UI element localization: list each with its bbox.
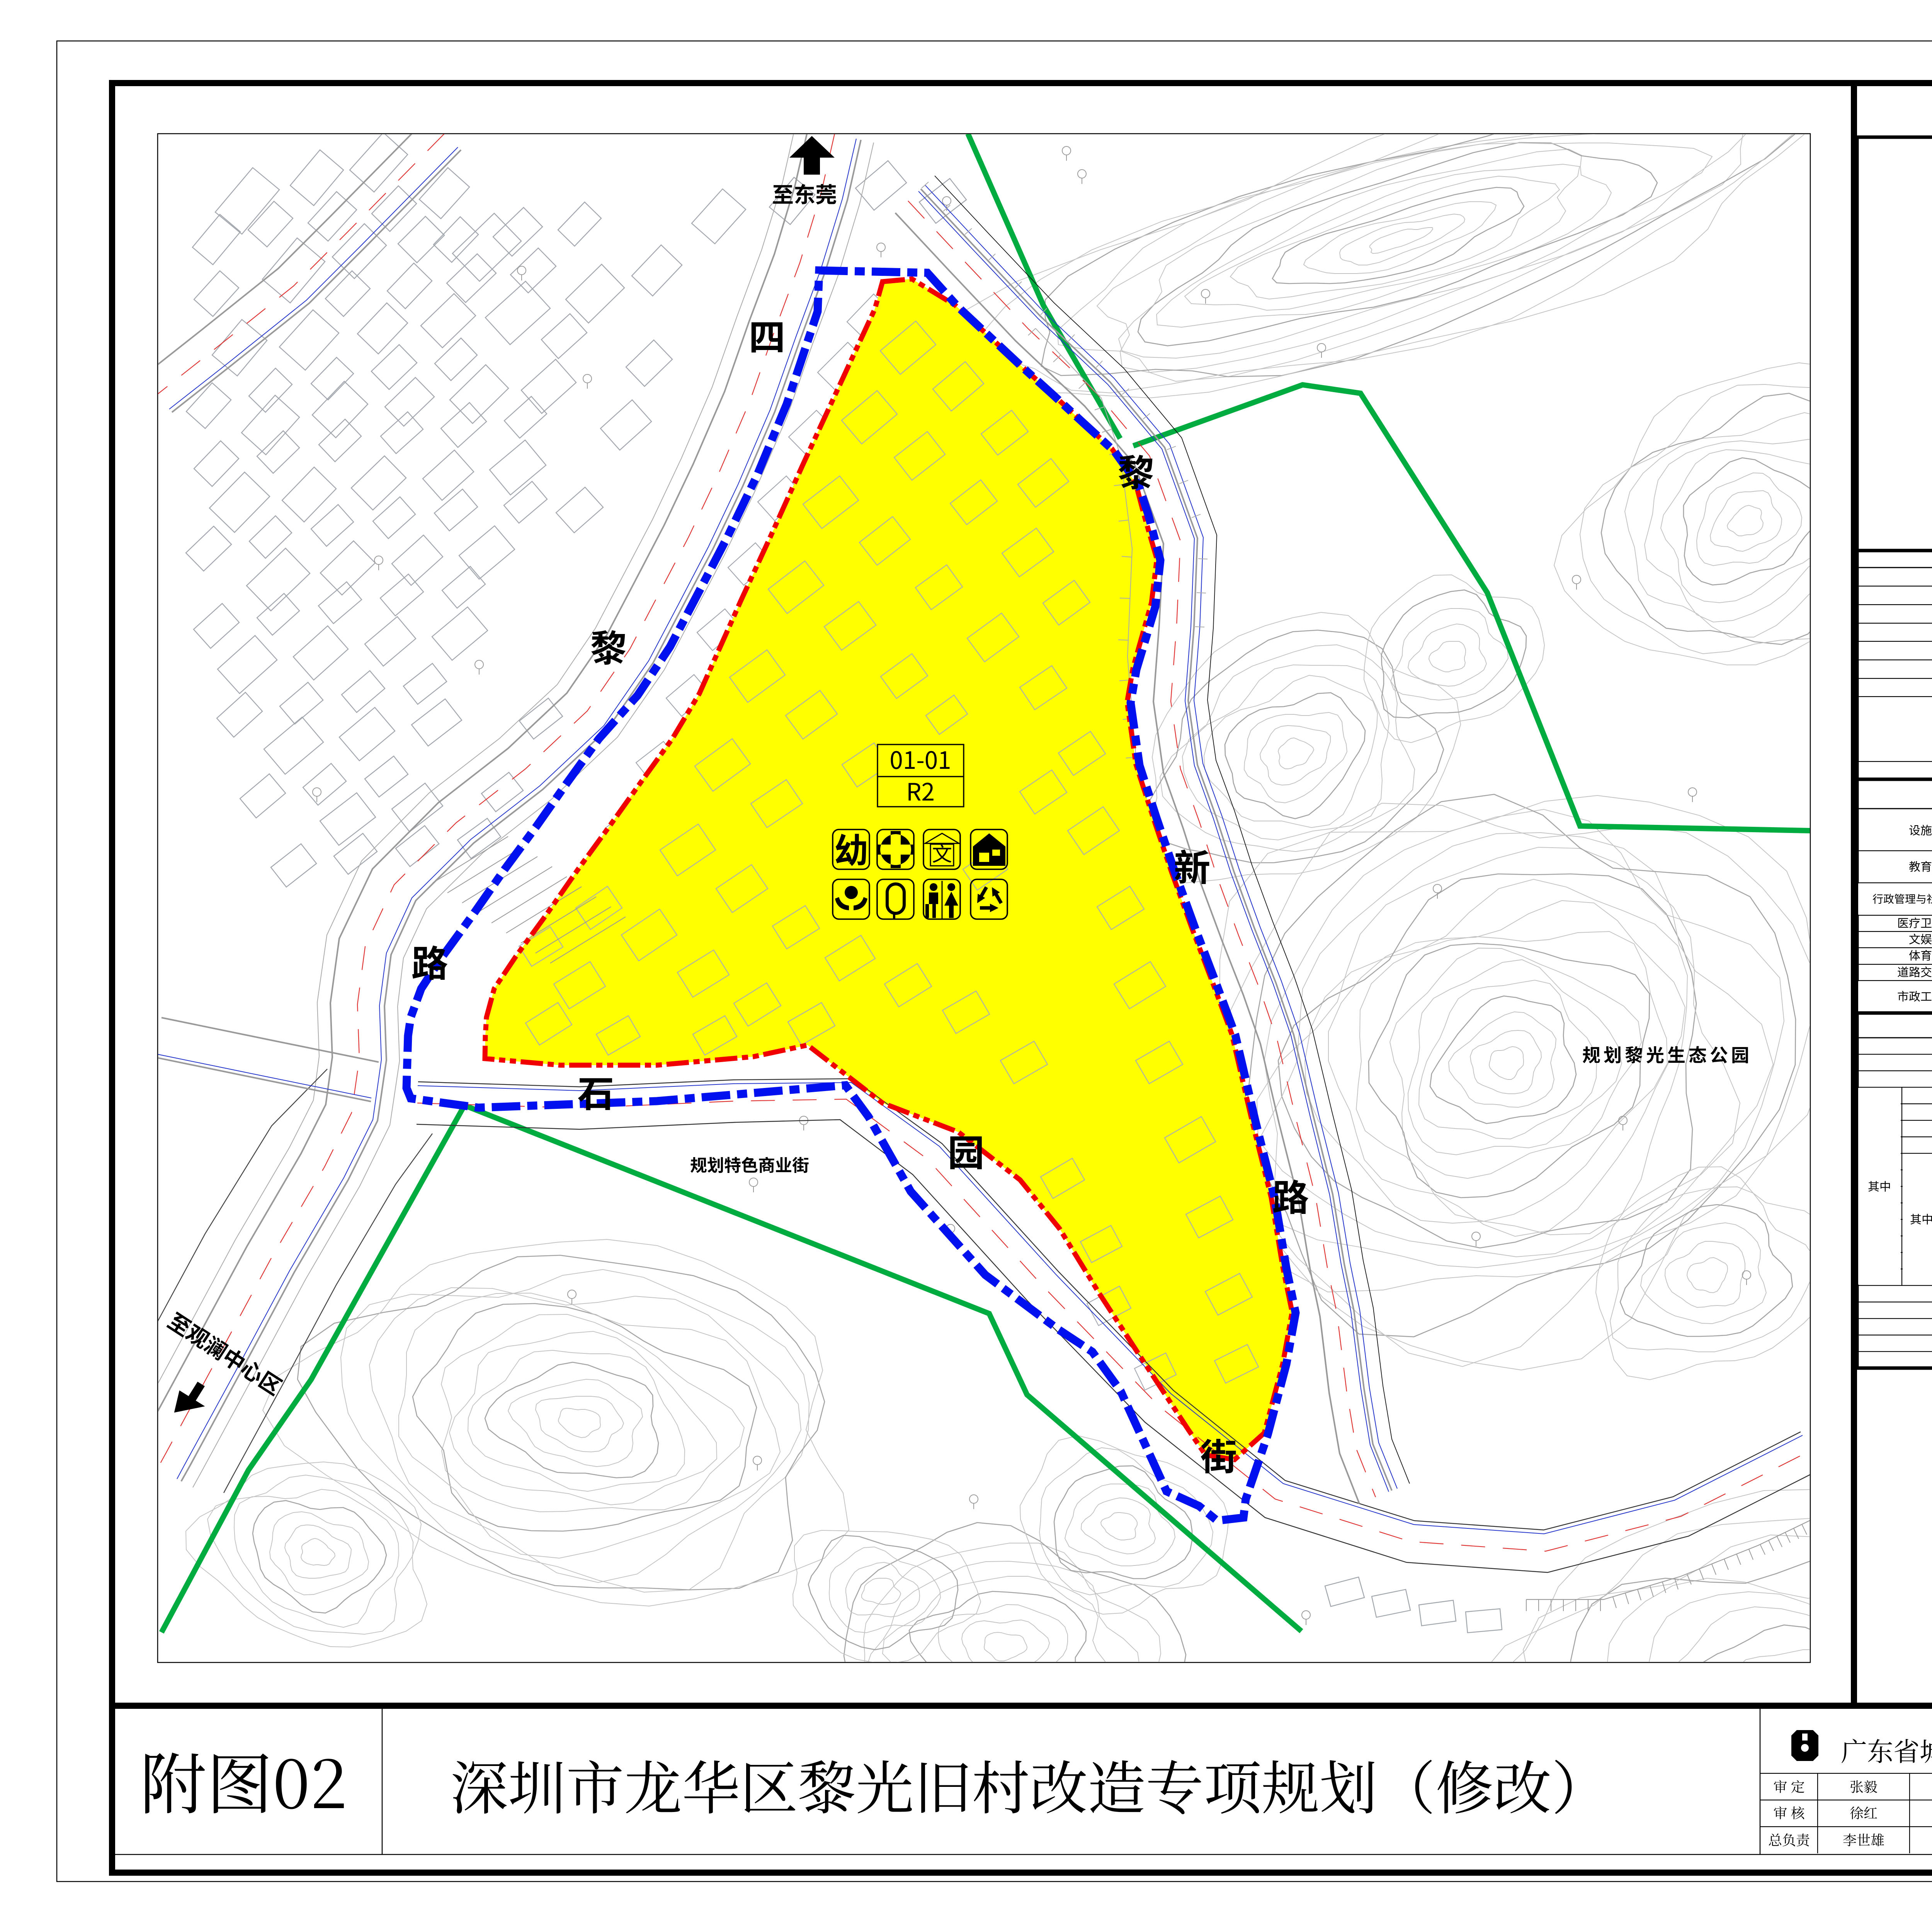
svg-text:深圳市龙华区黎光旧村改造专项规划（修改）: 深圳市龙华区黎光旧村改造专项规划（修改）: [450, 1742, 1609, 1826]
svg-text:规划黎光生态公园: 规划黎光生态公园: [1582, 1040, 1752, 1067]
svg-text:设施类别: 设施类别: [1909, 821, 1932, 838]
svg-text:文: 文: [932, 838, 952, 867]
svg-text:道路交通设施: 道路交通设施: [1897, 963, 1932, 980]
svg-text:园: 园: [947, 1124, 984, 1177]
svg-text:街: 街: [1200, 1428, 1237, 1481]
svg-text:广东省城乡规划设计研究院: 广东省城乡规划设计研究院: [1841, 1731, 1932, 1769]
svg-text:总负责: 总负责: [1768, 1830, 1811, 1849]
svg-text:医疗卫生设施: 医疗卫生设施: [1897, 914, 1932, 931]
svg-text:路: 路: [1272, 1169, 1309, 1222]
svg-text:至东莞: 至东莞: [772, 178, 837, 209]
svg-text:审 核: 审 核: [1773, 1803, 1805, 1822]
svg-text:市政工程设施: 市政工程设施: [1897, 987, 1932, 1004]
svg-text:其中: 其中: [1868, 1177, 1891, 1194]
svg-text:李世雄: 李世雄: [1843, 1830, 1884, 1849]
svg-text:01-01: 01-01: [889, 741, 951, 776]
svg-text:体育设施: 体育设施: [1909, 946, 1932, 963]
svg-text:附图02: 附图02: [140, 1732, 347, 1827]
svg-text:行政管理与社区服务设施: 行政管理与社区服务设施: [1872, 891, 1932, 906]
svg-text:R2: R2: [906, 773, 935, 807]
svg-text:黎: 黎: [1117, 444, 1154, 497]
svg-text:幼: 幼: [834, 824, 868, 873]
svg-text:文娱设施: 文娱设施: [1909, 930, 1932, 947]
svg-text:新: 新: [1173, 839, 1210, 892]
svg-text:审 定: 审 定: [1773, 1776, 1804, 1796]
svg-text:石: 石: [577, 1065, 614, 1118]
svg-text:规划特色商业街: 规划特色商业街: [690, 1152, 809, 1176]
svg-text:徐红: 徐红: [1850, 1803, 1878, 1822]
svg-text:其中: 其中: [1910, 1210, 1932, 1227]
svg-text:路: 路: [411, 935, 448, 988]
svg-text:四: 四: [748, 308, 785, 361]
svg-text:张毅: 张毅: [1850, 1776, 1878, 1796]
svg-text:黎: 黎: [590, 619, 627, 672]
svg-text:教育设施: 教育设施: [1909, 857, 1932, 874]
